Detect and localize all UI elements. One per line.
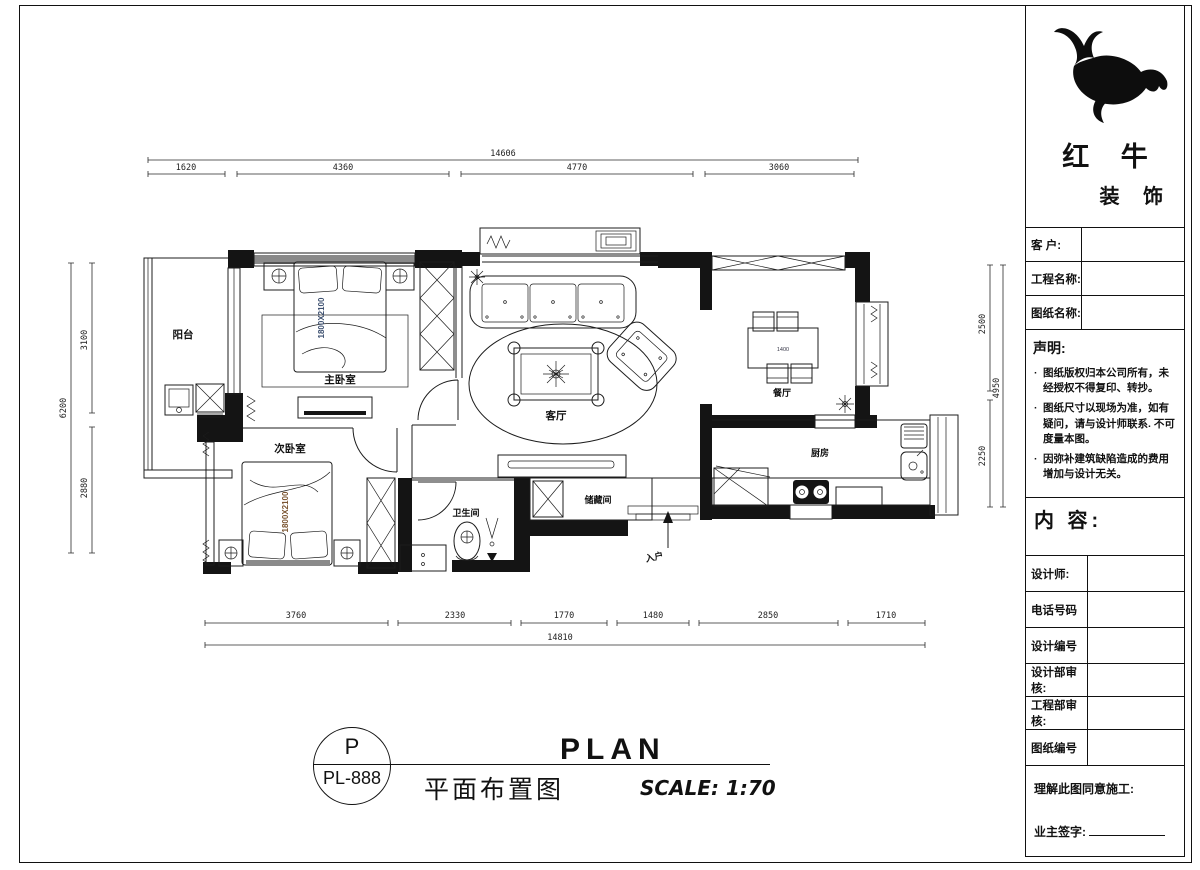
second-bedroom-door — [353, 428, 397, 472]
design-review-label: 设计部审核: — [1026, 664, 1088, 696]
entry-bay-window — [480, 228, 640, 254]
dining-chair — [791, 364, 812, 383]
master-door — [418, 380, 458, 420]
dim-bot-6: 1710 — [876, 611, 896, 621]
dim-bot-overall: 14810 — [547, 633, 573, 643]
project-label: 工程名称: — [1026, 262, 1082, 295]
bathroom-label: 卫生间 — [452, 507, 479, 518]
drawing-name-label: 图纸名称: — [1026, 296, 1082, 329]
bubble-code: PL-888 — [314, 768, 390, 789]
dimension-top: 14606 1620 4360 4770 3060 — [148, 149, 858, 177]
dim-right-1: 2500 — [978, 314, 988, 334]
drawing-sheet: { "sheet": {"bg": "#ffffff", "line_color… — [0, 0, 1200, 870]
floor-plan: 14606 1620 4360 4770 3060 6200 3100 2880… — [0, 0, 1030, 870]
entry-area: 入户 — [628, 506, 698, 564]
design-no-label: 设计编号 — [1026, 628, 1088, 663]
design-review-value[interactable] — [1088, 664, 1184, 696]
dining-room-label: 餐厅 — [772, 387, 791, 398]
shower-icon — [486, 518, 498, 562]
field-design-no: 设计编号 — [1026, 628, 1184, 664]
statement-list: 图纸版权归本公司所有，未经授权不得复印、转抄。 图纸尺寸以现场为准，如有疑问，请… — [1033, 366, 1179, 483]
coffee-table — [508, 342, 604, 406]
brand-name: 红 牛 — [1026, 135, 1184, 174]
field-eng-review: 工程部审核: — [1026, 697, 1184, 730]
designer-label: 设计师: — [1026, 556, 1088, 591]
owner-sign-label: 业主签字: — [1034, 825, 1086, 839]
second-bed-size-label: 1800X2100 — [281, 491, 290, 532]
dimension-left: 6200 3100 2880 — [59, 263, 95, 553]
customer-label: 客 户: — [1026, 228, 1082, 261]
living-rug — [469, 324, 657, 444]
dim-top-1: 1620 — [176, 163, 196, 173]
brand-logo-box: 红 牛 装 饰 — [1026, 6, 1184, 228]
kitchen-shaft — [930, 415, 958, 515]
plant-icon — [836, 395, 854, 413]
living-room-label: 客厅 — [545, 409, 567, 422]
balcony-label: 阳台 — [173, 328, 194, 341]
field-drawing-no: 图纸编号 — [1026, 730, 1184, 766]
drawing-title-cn: 平面布置图 — [424, 770, 564, 806]
nightstand — [264, 263, 294, 290]
dim-right-2: 2250 — [978, 446, 988, 466]
statement-item: 图纸尺寸以现场为准，如有疑问，请与设计师联系. 不可度量本图。 — [1043, 401, 1179, 447]
dimension-bottom: 3760 2330 1770 1480 2850 1710 14810 — [205, 611, 925, 648]
statement-item: 图纸版权归本公司所有，未经授权不得复印、转抄。 — [1043, 366, 1179, 396]
drawing-name-value[interactable] — [1082, 296, 1184, 329]
dining-table: 1400 — [748, 328, 818, 368]
eng-review-value[interactable] — [1088, 697, 1184, 729]
drawing-no-label: 图纸编号 — [1026, 730, 1088, 765]
washing-machine — [165, 385, 193, 415]
dim-top-2: 4360 — [333, 163, 353, 173]
room-bathroom: 卫生间 — [400, 482, 498, 571]
field-phone: 电话号码 — [1026, 592, 1184, 628]
dim-left-overall: 6200 — [59, 398, 69, 418]
field-designer: 设计师: — [1026, 556, 1184, 592]
dim-left-1: 3100 — [80, 330, 90, 350]
insulation-zigzag — [247, 396, 255, 421]
nightstand — [386, 263, 414, 290]
designer-value[interactable] — [1088, 556, 1184, 591]
title-block: 红 牛 装 饰 客 户: 工程名称: 图纸名称: 声明: 图纸版权归本公司所有，… — [1025, 5, 1185, 857]
statement-heading: 声明: — [1033, 338, 1179, 358]
armchair — [603, 318, 681, 395]
dimension-right: 2500 2250 4950 — [978, 265, 1006, 507]
master-bed-size-label: 1800X2100 — [317, 297, 326, 338]
drawing-bubble: P PL-888 — [313, 727, 391, 805]
toilet-icon — [454, 522, 480, 561]
content-label: 内 容: — [1034, 510, 1102, 532]
table-flower-icon — [543, 361, 569, 387]
dim-right-overall: 4950 — [992, 378, 1002, 398]
sofa — [470, 276, 636, 328]
entry-arrow-icon — [663, 511, 673, 523]
nightstand — [334, 540, 360, 566]
room-kitchen: 厨房 — [712, 424, 930, 506]
agree-line: 理解此图同意施工: — [1034, 780, 1178, 797]
design-no-value[interactable] — [1088, 628, 1184, 663]
room-master-bedroom: 1800X2100 主卧室 — [262, 262, 458, 420]
balcony-cabinet — [196, 384, 224, 417]
walls — [144, 250, 935, 574]
room-second-bedroom: 次卧室 1800X2100 — [203, 428, 397, 568]
dim-top-overall: 14606 — [490, 149, 516, 159]
field-customer: 客 户: — [1026, 228, 1184, 262]
entry-label: 入户 — [643, 549, 664, 564]
dining-window — [712, 256, 845, 270]
second-bedroom-label: 次卧室 — [274, 442, 306, 455]
drawing-no-value[interactable] — [1088, 730, 1184, 765]
bathroom-door — [418, 482, 456, 520]
dining-bay-window — [856, 302, 888, 386]
plant-icon — [469, 269, 485, 285]
master-wardrobe — [420, 262, 454, 370]
corner-cabinet — [714, 466, 770, 506]
eng-review-label: 工程部审核: — [1026, 697, 1088, 729]
phone-label: 电话号码 — [1026, 592, 1088, 627]
field-drawing-name: 图纸名称: — [1026, 296, 1184, 330]
dim-bot-5: 2850 — [758, 611, 778, 621]
project-value[interactable] — [1082, 262, 1184, 295]
tv-console — [498, 455, 626, 477]
kitchen-appliance — [836, 487, 882, 505]
signature-box: 理解此图同意施工: 业主签字: — [1026, 766, 1184, 856]
customer-value[interactable] — [1082, 228, 1184, 261]
field-design-review: 设计部审核: — [1026, 664, 1184, 697]
dim-bot-2: 2330 — [445, 611, 465, 621]
drawing-scale: SCALE: 1:70 — [640, 776, 776, 800]
phone-value[interactable] — [1088, 592, 1184, 627]
dim-top-3: 4770 — [567, 163, 587, 173]
owner-sign-field[interactable] — [1089, 823, 1165, 836]
storage-label: 储藏间 — [584, 494, 611, 505]
dim-bot-4: 1480 — [643, 611, 663, 621]
drawing-title-en: PLAN — [560, 733, 666, 767]
second-wardrobe — [367, 478, 395, 568]
statement-box: 声明: 图纸版权归本公司所有，未经授权不得复印、转抄。 图纸尺寸以现场为准，如有… — [1026, 330, 1184, 498]
dim-bot-3: 1770 — [554, 611, 574, 621]
room-dining: 1400 餐厅 — [748, 312, 854, 413]
sink-icon — [901, 424, 927, 480]
statement-item: 因弥补建筑缺陷造成的费用增加与设计无关。 — [1043, 452, 1179, 482]
dining-table-size-label: 1400 — [777, 347, 789, 353]
brand-name-sub: 装 饰 — [1026, 180, 1184, 209]
bubble-letter: P — [314, 734, 390, 760]
dim-bot-1: 3760 — [286, 611, 306, 621]
dining-chair — [767, 364, 788, 383]
master-dresser — [298, 397, 372, 418]
room-living: 客厅 — [469, 269, 681, 444]
dim-left-2: 2880 — [80, 478, 90, 498]
master-bedroom-label: 主卧室 — [324, 373, 356, 386]
stove-icon — [793, 480, 829, 504]
dim-top-4: 3060 — [769, 163, 789, 173]
field-project: 工程名称: — [1026, 262, 1184, 296]
second-bed: 1800X2100 — [242, 462, 332, 566]
bull-logo-icon — [1040, 16, 1170, 126]
content-box: 内 容: — [1026, 498, 1184, 556]
kitchen-label: 厨房 — [811, 447, 829, 458]
master-bed: 1800X2100 — [294, 262, 386, 372]
